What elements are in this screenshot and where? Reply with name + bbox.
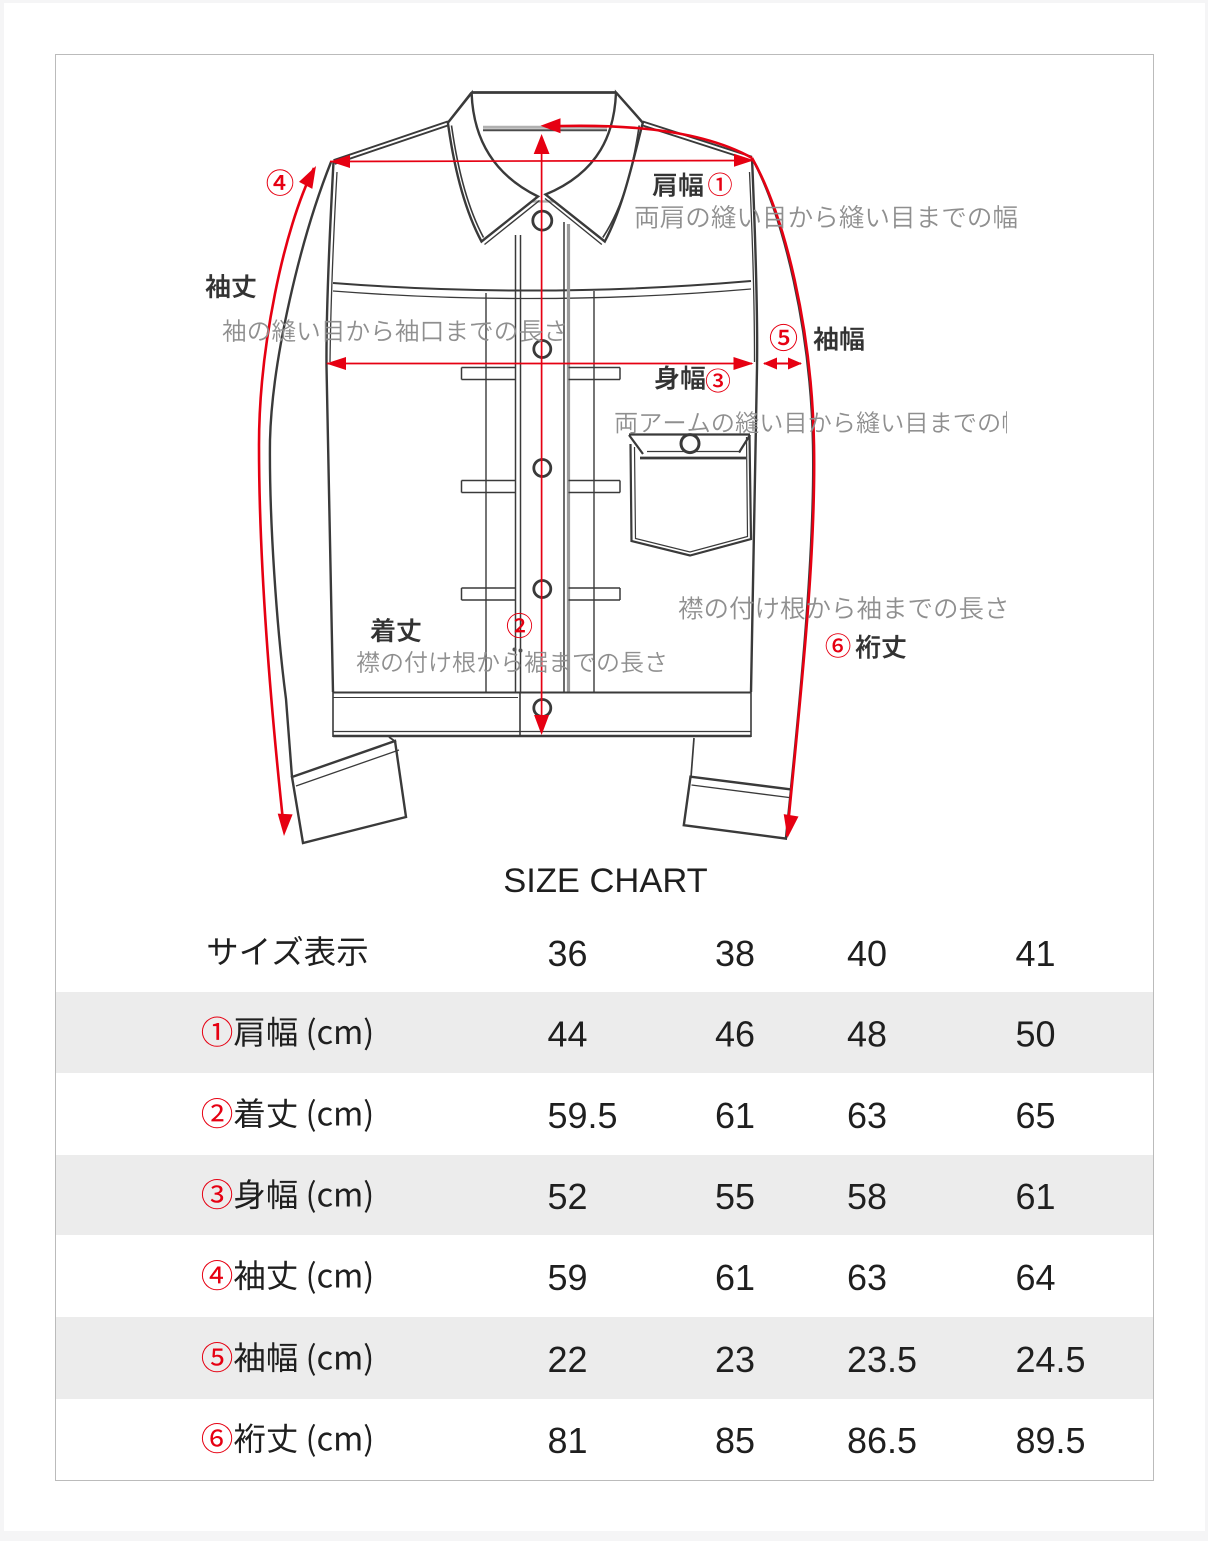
svg-text:41: 41 <box>1016 933 1056 974</box>
svg-text:63: 63 <box>847 1095 887 1136</box>
svg-text:23.5: 23.5 <box>847 1339 917 1380</box>
svg-text:59: 59 <box>548 1257 588 1298</box>
svg-text:SIZE CHART: SIZE CHART <box>503 862 707 900</box>
svg-text:61: 61 <box>1016 1176 1056 1217</box>
svg-text:61: 61 <box>715 1257 755 1298</box>
svg-text:36: 36 <box>548 933 588 974</box>
svg-text:55: 55 <box>715 1176 755 1217</box>
svg-text:65: 65 <box>1016 1095 1056 1136</box>
svg-text:48: 48 <box>847 1014 887 1055</box>
svg-text:38: 38 <box>715 933 755 974</box>
svg-text:89.5: 89.5 <box>1016 1420 1086 1461</box>
svg-text:63: 63 <box>847 1257 887 1298</box>
svg-text:52: 52 <box>548 1176 588 1217</box>
svg-text:81: 81 <box>548 1420 588 1461</box>
svg-text:64: 64 <box>1016 1257 1056 1298</box>
svg-text:85: 85 <box>715 1420 755 1461</box>
svg-text:61: 61 <box>715 1095 755 1136</box>
svg-text:59.5: 59.5 <box>548 1095 618 1136</box>
svg-text:44: 44 <box>548 1014 588 1055</box>
svg-text:24.5: 24.5 <box>1016 1339 1086 1380</box>
svg-text:40: 40 <box>847 933 887 974</box>
svg-text:50: 50 <box>1016 1014 1056 1055</box>
svg-text:46: 46 <box>715 1014 755 1055</box>
svg-text:23: 23 <box>715 1339 755 1380</box>
svg-text:86.5: 86.5 <box>847 1420 917 1461</box>
svg-text:58: 58 <box>847 1176 887 1217</box>
svg-text:22: 22 <box>548 1339 588 1380</box>
